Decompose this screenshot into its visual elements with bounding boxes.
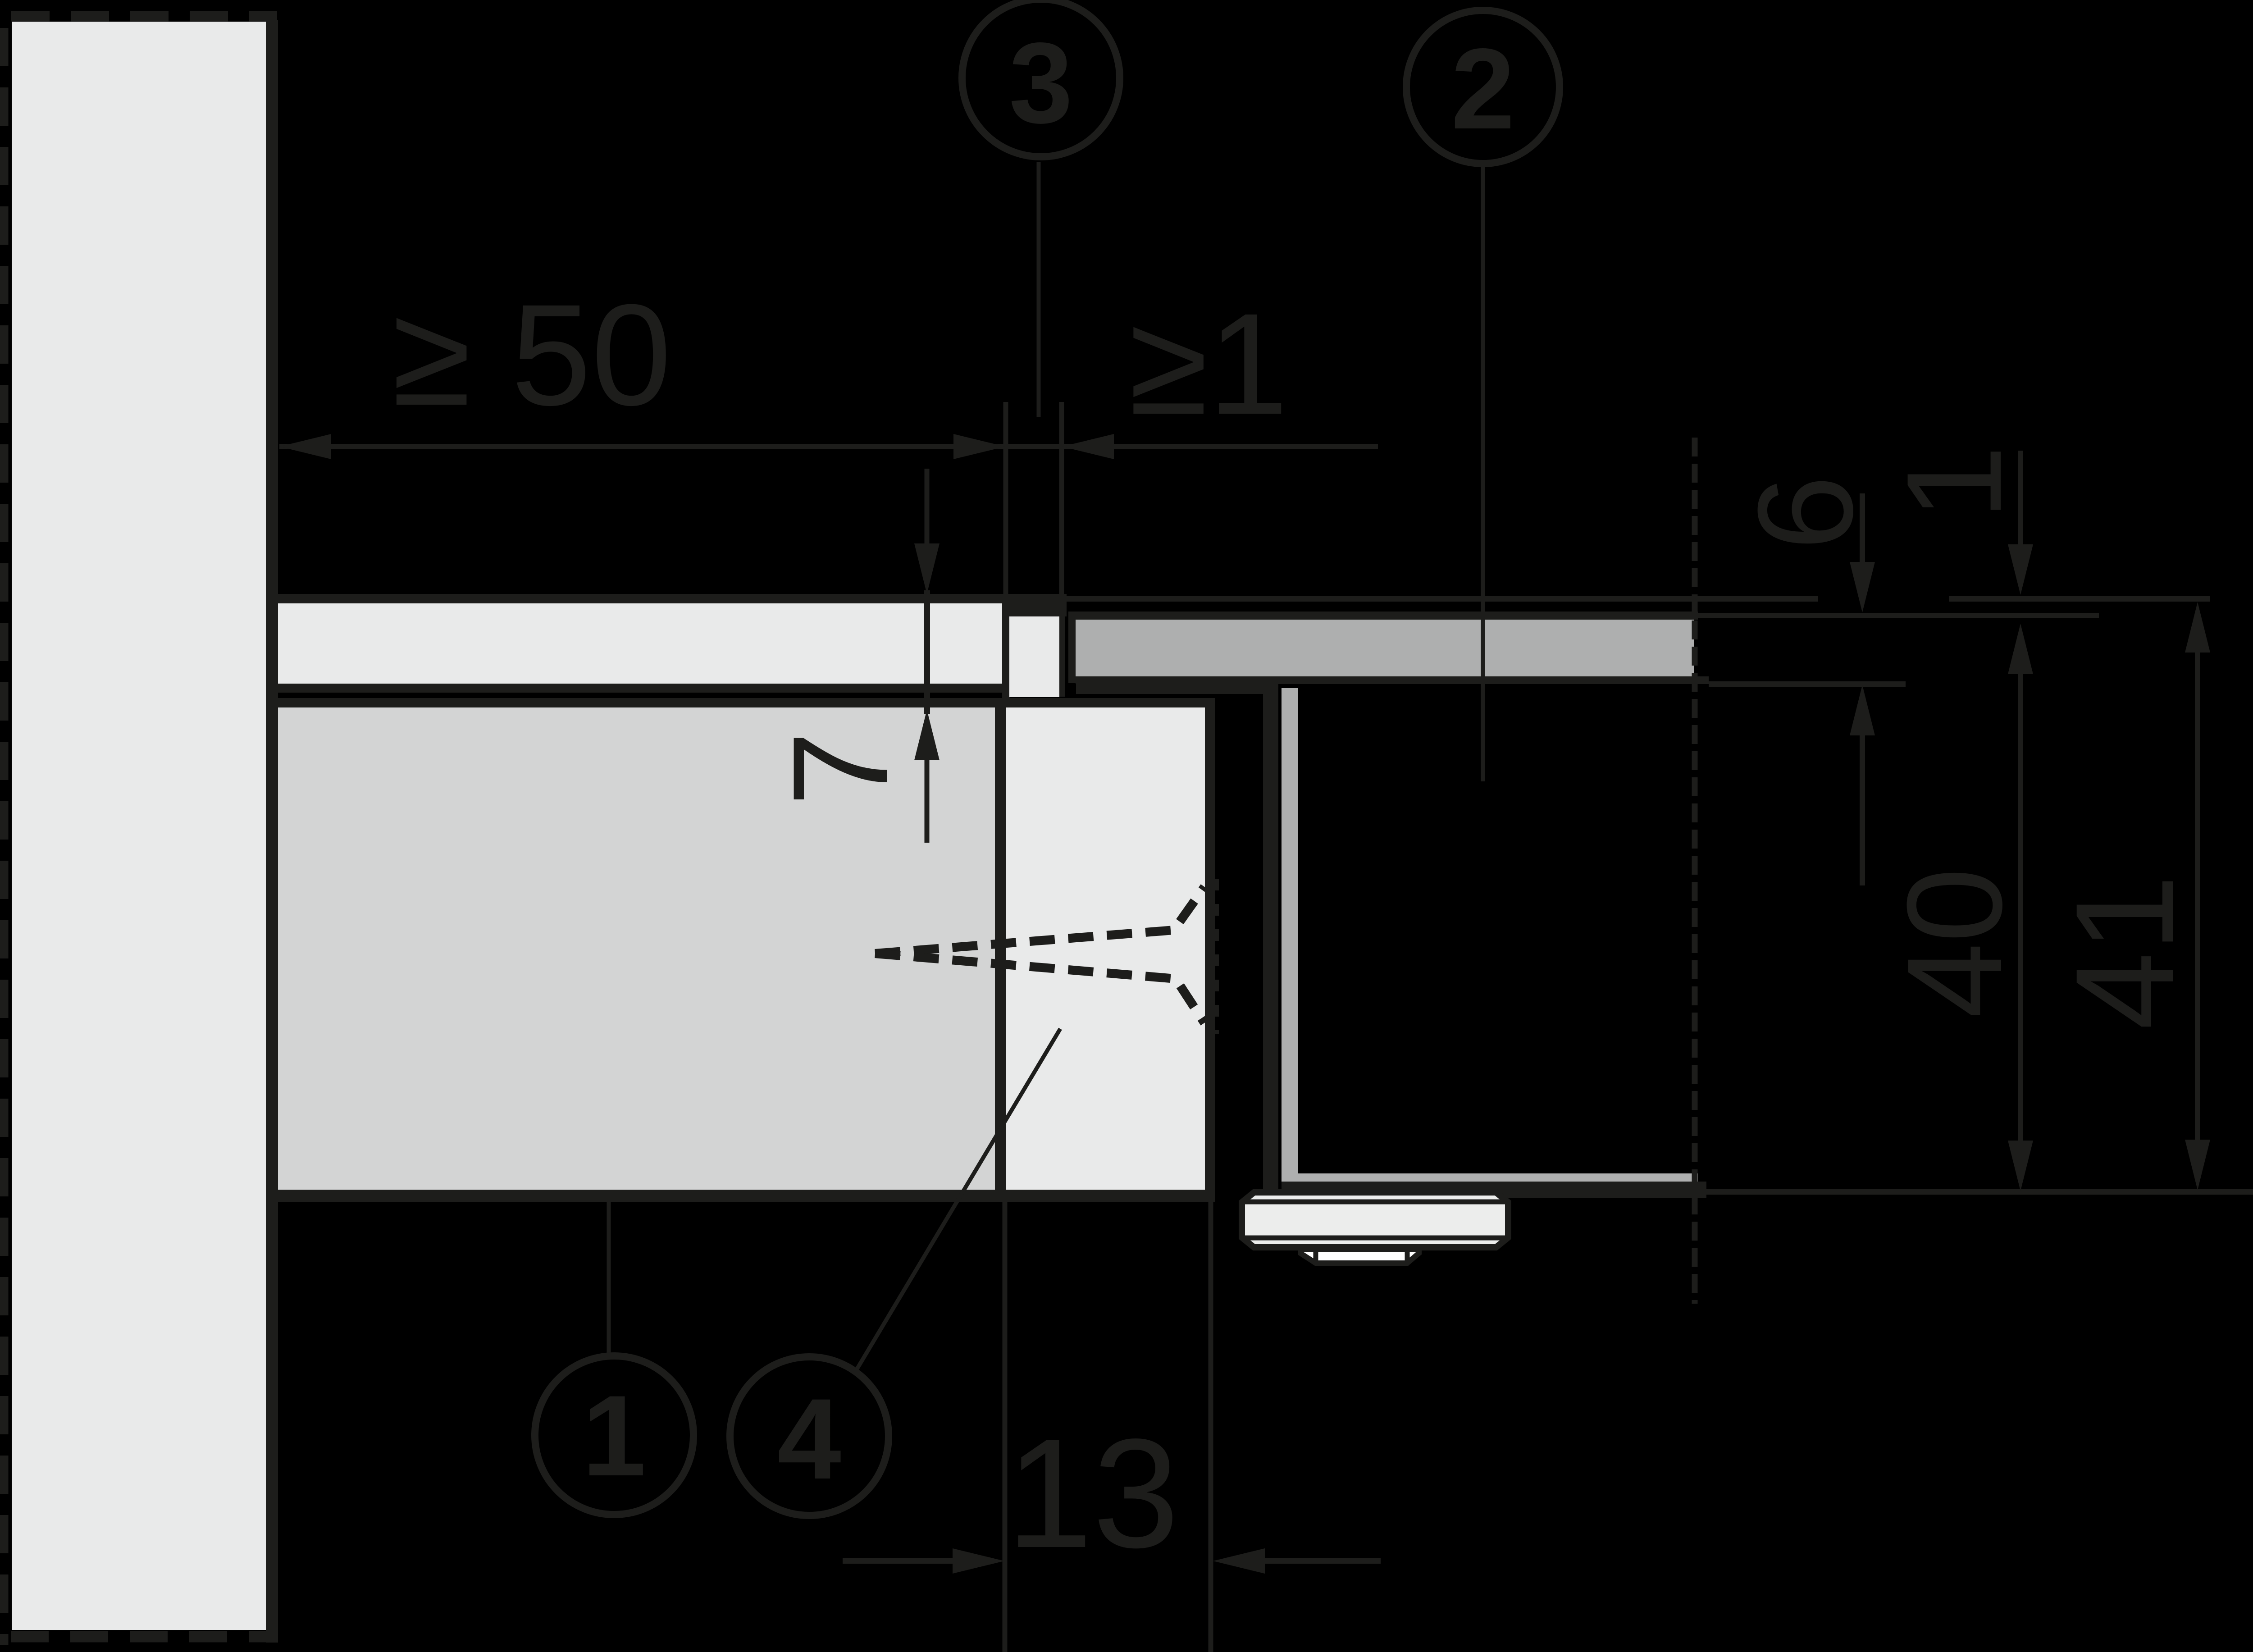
svg-text:7: 7 — [764, 731, 916, 807]
svg-text:1: 1 — [1878, 445, 2030, 520]
svg-text:3: 3 — [1009, 19, 1073, 147]
svg-text:≥1: ≥1 — [1129, 283, 1288, 444]
svg-text:2: 2 — [1451, 25, 1515, 153]
svg-text:≥ 50: ≥ 50 — [392, 274, 671, 435]
svg-text:40: 40 — [1879, 867, 2030, 1018]
svg-text:4: 4 — [777, 1375, 841, 1503]
svg-text:6: 6 — [1729, 475, 1881, 551]
svg-text:41: 41 — [2046, 875, 2203, 1030]
svg-text:1: 1 — [582, 1372, 646, 1500]
svg-text:13: 13 — [1006, 1407, 1179, 1580]
